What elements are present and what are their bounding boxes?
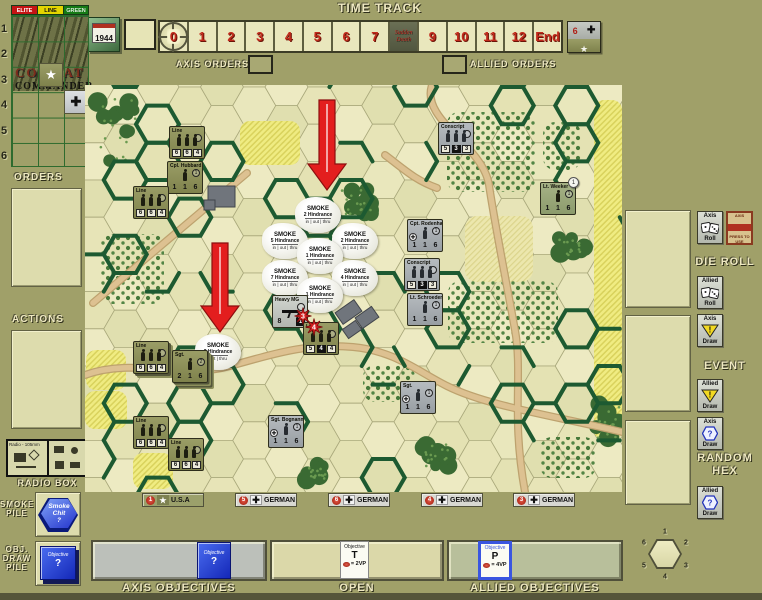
- unit-stats: 116: [403, 404, 433, 412]
- unit-counter[interactable]: Lt. Schroeder1116: [407, 293, 443, 326]
- german-flag-icon: ✚: [528, 495, 540, 505]
- medal-icon: ✚: [270, 429, 278, 437]
- unit-silhouettes: [405, 269, 439, 278]
- unit-stat: 3: [418, 281, 427, 289]
- allied-hex-top-label: Allied: [702, 488, 718, 494]
- unit-counter[interactable]: Sgt. Bognanno1116✚: [268, 415, 304, 448]
- radio-box-label: RADIO BOX: [6, 478, 89, 488]
- unit-stats: 81: [275, 318, 305, 326]
- turn-counter-value: 6: [573, 26, 578, 36]
- allied-event-top-label: Allied: [702, 381, 718, 387]
- time-track-cell: 3: [246, 22, 275, 51]
- radio-art: [70, 462, 80, 468]
- objective-pile-chit[interactable]: Objective ?: [40, 546, 76, 580]
- axis-objectives-panel: [91, 540, 267, 581]
- allied-orders-label: ALLIED ORDERS: [470, 59, 557, 69]
- radio-art: [54, 446, 64, 453]
- roster-column-line: LINE: [37, 5, 64, 15]
- roster-row-number: 1: [1, 23, 9, 35]
- time-track-number: 6: [342, 29, 349, 44]
- allied-objectives-panel: [447, 540, 623, 581]
- allied-hex-bottom-label: Draw: [703, 511, 718, 517]
- turn-counter-stack[interactable]: 6 ✚ ★: [567, 21, 601, 53]
- plaque-number-disc: 6: [332, 496, 341, 505]
- allied-event-bottom-label: Draw: [703, 404, 718, 410]
- axis-objective-chit[interactable]: Objective ?: [197, 542, 231, 579]
- unit-stat: 4: [192, 461, 201, 469]
- time-track-cell: 1: [189, 22, 218, 51]
- unit-silhouettes: [134, 352, 168, 361]
- smoke-pile-chit[interactable]: Smoke Chit ?: [38, 498, 78, 532]
- allied-objective-title: Objective: [481, 544, 509, 551]
- axis-card-top-label: AXIS: [728, 213, 751, 218]
- machine-gun-icon: [282, 310, 298, 313]
- unit-stat: 5: [407, 281, 416, 289]
- actions-display-box: [11, 330, 82, 429]
- unit-silhouettes: [304, 333, 338, 342]
- time-track-cell: 6: [333, 22, 362, 51]
- axis-event-bottom-label: Draw: [703, 339, 718, 345]
- unit-stat: 6: [136, 209, 145, 217]
- game-window: { "header": { "time_track_title": "TIME …: [0, 0, 762, 600]
- vp-dot-icon: [343, 562, 350, 567]
- random-hex-icon: ?: [702, 426, 718, 441]
- unit-roster-panel: COMBAT COMMANDER ELITE LINE GREEN ★ ✚: [8, 5, 89, 168]
- unit-silhouettes: [168, 172, 202, 181]
- unit-stat: 1: [410, 316, 419, 324]
- time-track-number: 4: [285, 29, 292, 44]
- axis-hex-bottom-label: Draw: [703, 442, 718, 448]
- allied-objective-letter: P: [481, 551, 509, 562]
- unit-silhouettes: [173, 361, 207, 370]
- plaque-label: U.S.A: [171, 497, 190, 504]
- event-triangle-icon: !: [701, 323, 719, 338]
- objective-chit-title: Objective: [41, 547, 75, 558]
- unit-stat: 4: [327, 345, 336, 353]
- unit-silhouettes: [169, 449, 203, 458]
- smoke-marker-text: out | thru: [208, 355, 228, 362]
- unit-silhouettes: [408, 304, 442, 313]
- time-track-title: TIME TRACK: [280, 1, 480, 15]
- allied-event-draw-button[interactable]: Allied ! Draw: [697, 379, 723, 412]
- smoke-marker-text: in | out | thru: [305, 218, 332, 225]
- roster-row-number: 3: [1, 74, 9, 86]
- unit-stat: 3: [462, 145, 471, 153]
- time-track-cell: 2: [218, 22, 247, 51]
- map-token-layer: SMOKE2 Hindrancein | out | thruSMOKE5 Hi…: [85, 85, 622, 492]
- axis-event-top-label: Axis: [704, 316, 717, 322]
- radio-box-cell: [49, 441, 88, 475]
- unit-silhouettes: [541, 193, 575, 202]
- unit-counter[interactable]: Line664: [169, 126, 205, 159]
- unit-stat: 1: [421, 242, 430, 250]
- unit-stat: 4: [193, 149, 202, 157]
- unit-name: Line: [170, 127, 204, 134]
- smoke-marker-text: in | out | thru: [272, 244, 299, 251]
- unit-stat: 6: [147, 209, 156, 217]
- orders-display-box: [11, 188, 82, 287]
- plaque-label: GERMAN: [264, 497, 295, 504]
- smoke-marker-text: in | out | thru: [342, 281, 369, 288]
- unit-name: Cpt. Rodenhaus: [408, 220, 442, 227]
- unit-silhouettes: [134, 427, 168, 436]
- smoke-marker-text: in | out | thru: [307, 298, 334, 305]
- unit-stat: 5: [441, 145, 450, 153]
- random-hex-icon: ?: [702, 495, 718, 510]
- allied-roll-bottom-label: Roll: [704, 301, 715, 307]
- unit-stat: 6: [183, 149, 192, 157]
- hex-direction-compass: 123456: [636, 526, 694, 582]
- unit-name: Line: [169, 439, 203, 446]
- unit-stats: 664: [136, 439, 166, 447]
- axis-objective-value: ?: [198, 556, 230, 567]
- compass-direction-number: 3: [684, 563, 688, 570]
- axis-orders-box: [248, 55, 273, 74]
- unit-stat: 6: [191, 184, 200, 192]
- allied-objective-vp: = 4VP: [491, 562, 506, 568]
- unit-silhouettes: [134, 197, 168, 206]
- plaque-number-disc: 4: [425, 496, 434, 505]
- time-track-cell: 5: [304, 22, 333, 51]
- time-track-cell: 7: [361, 22, 390, 51]
- unit-stat: 4: [157, 209, 166, 217]
- sudden-death-chit[interactable]: SuddenDeath: [390, 22, 419, 51]
- unit-silhouettes: [439, 133, 473, 142]
- sudden-death-label: Sudden: [395, 30, 413, 36]
- unit-stats: 664: [171, 461, 201, 469]
- time-track-number: 11: [483, 29, 497, 44]
- event-triangle-icon: !: [701, 388, 719, 403]
- unit-stats: 533: [441, 145, 471, 153]
- allied-roll-button[interactable]: Allied Roll: [697, 276, 723, 309]
- time-track-cell: 0: [160, 22, 189, 51]
- track-holding-box: [124, 19, 156, 50]
- us-star-icon: ★: [580, 44, 588, 54]
- axis-orders-label: AXIS ORDERS: [176, 59, 249, 69]
- unit-name: Sgt.: [173, 351, 207, 358]
- svg-text:?: ?: [708, 499, 713, 508]
- svg-text:!: !: [709, 391, 712, 400]
- unit-counter[interactable]: Cpt. Rodenhaus1116✚: [407, 219, 443, 252]
- axis-card-button[interactable]: AXIS PRESS TO USE: [726, 211, 753, 245]
- year-chit[interactable]: 1944: [88, 17, 120, 52]
- smoke-marker[interactable]: SMOKE2 Hindrancein | out | thru: [295, 197, 341, 233]
- red-arrow-marker: [308, 100, 346, 190]
- radio-box[interactable]: Radio - 105mm: [6, 439, 89, 477]
- unit-stat: 1: [282, 438, 291, 446]
- unit-stat: 3: [452, 145, 461, 153]
- plaque-label: GERMAN: [450, 497, 481, 504]
- unit-stat: 1: [170, 184, 179, 192]
- axis-card-bottom-label: PRESS TO USE: [728, 234, 751, 244]
- radio-art: [71, 447, 78, 454]
- smoke-marker-text: in | out | thru: [342, 244, 369, 251]
- open-objective-title: Objective: [341, 542, 368, 550]
- time-track-cell: End: [534, 22, 561, 51]
- unit-stat: 6: [147, 364, 156, 372]
- objective-chit-value: ?: [41, 558, 75, 569]
- axis-objective-title: Objective: [198, 543, 230, 556]
- roster-row-number: 5: [1, 125, 9, 137]
- unit-stat: 6: [196, 373, 205, 381]
- allied-roll-top-label: Allied: [702, 278, 718, 284]
- axis-card-band: [728, 224, 751, 231]
- open-objective-vp: = 2VP: [351, 561, 366, 567]
- unit-stats: 116: [410, 242, 440, 250]
- unit-stats: 533: [407, 281, 437, 289]
- axis-hex-top-label: Axis: [704, 419, 717, 425]
- unit-stat: 4: [317, 345, 326, 353]
- unit-counter[interactable]: Line664: [168, 438, 204, 471]
- unit-stat: 1: [421, 316, 430, 324]
- unit-stat: 6: [136, 364, 145, 372]
- unit-stat: 6: [136, 439, 145, 447]
- unit-counter[interactable]: Line544: [303, 322, 339, 355]
- roster-row-number: 4: [1, 99, 9, 111]
- obj-draw-pile-label: OBJ. DRAW PILE: [0, 545, 34, 572]
- unit-stats: 544: [306, 345, 336, 353]
- plaque-number-disc: 1: [146, 496, 155, 505]
- unit-counter[interactable]: Lt. Weeker11161: [540, 182, 576, 215]
- unit-counter[interactable]: Sgt.1116✚: [400, 381, 436, 414]
- orders-label: ORDERS: [14, 172, 63, 183]
- open-objective-chit[interactable]: Objective T = 2VP: [340, 541, 369, 579]
- time-track: 01234567SuddenDeath9101112End: [158, 20, 563, 53]
- axis-roll-button[interactable]: Axis Roll: [697, 211, 723, 244]
- unit-name: Line: [134, 342, 168, 349]
- smoke-pile-box: Smoke Chit ?: [35, 492, 81, 537]
- time-track-cell: 9: [419, 22, 448, 51]
- allied-orders-box: [442, 55, 467, 74]
- axis-hex-draw-button[interactable]: Axis ? Draw: [697, 417, 723, 450]
- time-track-number: 2: [227, 29, 234, 44]
- unit-stat: 3: [428, 281, 437, 289]
- unit-stat: 4: [157, 439, 166, 447]
- svg-text:!: !: [709, 326, 712, 335]
- unit-stat: 1: [554, 205, 563, 213]
- unit-name: Line: [134, 417, 168, 424]
- smoke-pile-label: SMOKE PILE: [0, 500, 34, 518]
- unit-stat: 6: [182, 461, 191, 469]
- radio-art: [28, 449, 39, 460]
- unit-stats: 216: [175, 373, 205, 381]
- time-track-number: End: [535, 29, 560, 44]
- unit-counter[interactable]: Conscript533: [404, 258, 440, 291]
- unit-name: Sgt.: [401, 382, 435, 389]
- unit-name: Conscript: [405, 259, 439, 266]
- axis-card-display-box: [625, 210, 691, 308]
- time-track-number: 5: [314, 29, 321, 44]
- unit-stat: 6: [431, 242, 440, 250]
- sudden-death-label: Death: [396, 37, 411, 43]
- axis-event-draw-button[interactable]: Axis ! Draw: [697, 314, 723, 347]
- compass-direction-number: 6: [642, 540, 646, 547]
- svg-text:?: ?: [708, 430, 713, 439]
- unit-stats: 116: [170, 184, 200, 192]
- time-track-number: 0: [167, 29, 180, 44]
- time-track-number: 10: [454, 29, 468, 44]
- unit-stats: 116: [410, 316, 440, 324]
- unit-name: Lt. Schroeder: [408, 294, 442, 301]
- unit-counter[interactable]: Line664: [133, 341, 169, 374]
- unit-stat: 6: [171, 461, 180, 469]
- time-track-cell: 11: [477, 22, 506, 51]
- german-flag-icon: ✚: [343, 495, 355, 505]
- time-track-cell: 4: [275, 22, 304, 51]
- unit-counter[interactable]: Sgt.2216: [172, 350, 208, 383]
- unit-stat: 6: [172, 149, 181, 157]
- unit-stat: 2: [175, 373, 184, 381]
- unit-stat: 6: [431, 316, 440, 324]
- us-flag-icon: ★: [157, 495, 169, 505]
- bottom-border-bar: [0, 593, 762, 600]
- compass-direction-number: 2: [684, 540, 688, 547]
- unit-stat: 8: [275, 318, 284, 326]
- compass-direction-number: 1: [663, 529, 667, 536]
- unit-name: Conscript: [439, 123, 473, 130]
- die-roll-label: DIE ROLL: [688, 256, 762, 268]
- unit-stat: 6: [292, 438, 301, 446]
- hex-card-display-box: [625, 420, 691, 505]
- unit-counter[interactable]: Conscript533: [438, 122, 474, 155]
- unit-stat: 4: [157, 364, 166, 372]
- time-track-number: 3: [256, 29, 263, 44]
- event-label: EVENT: [688, 360, 762, 372]
- radio-art: [14, 453, 26, 462]
- star-icon: ★: [45, 67, 57, 83]
- dice-icon: [701, 286, 719, 300]
- unit-stat: 6: [424, 404, 433, 412]
- unit-stat: 1: [271, 438, 280, 446]
- medal-icon: ✚: [409, 233, 417, 241]
- unit-name: Heavy MG: [273, 296, 307, 303]
- red-arrow-marker: [201, 243, 239, 332]
- plaque-number-disc: 5: [239, 496, 248, 505]
- axis-roll-top-label: Axis: [704, 213, 717, 219]
- time-track-number: 9: [429, 29, 436, 44]
- unit-name: Line: [134, 187, 168, 194]
- axis-roll-bottom-label: Roll: [704, 236, 715, 242]
- german-flag-icon: ✚: [436, 495, 448, 505]
- german-cross-icon: ✚: [587, 25, 595, 36]
- unit-stats: 116: [271, 438, 301, 446]
- time-marker-dial[interactable]: 0: [161, 24, 186, 49]
- faction-plaque[interactable]: 1★U.S.A: [142, 493, 204, 507]
- smoke-marker-text: in | out | thru: [307, 259, 334, 266]
- unit-stats: 664: [136, 364, 166, 372]
- roster-row-number: 2: [1, 48, 9, 60]
- unit-stat: 1: [403, 404, 412, 412]
- unit-stat: 1: [181, 184, 190, 192]
- roster-row-number: 6: [1, 150, 9, 162]
- unit-stat: 5: [306, 345, 315, 353]
- status-disc-marker[interactable]: 1: [568, 177, 579, 188]
- time-track-number: 12: [512, 29, 526, 44]
- radio-art: [16, 466, 36, 468]
- time-track-cell: 12: [505, 22, 534, 51]
- unit-stat: 6: [564, 205, 573, 213]
- faction-plaque[interactable]: 4✚GERMAN: [421, 493, 483, 507]
- unit-stats: 664: [172, 149, 202, 157]
- roster-column-green: GREEN: [63, 5, 89, 15]
- time-track-number: 1: [199, 29, 206, 44]
- unit-counter[interactable]: Cpl. Hubbard1116: [167, 161, 203, 194]
- unit-stat: 1: [543, 205, 552, 213]
- allied-hex-draw-button[interactable]: Allied ? Draw: [697, 486, 723, 519]
- time-track-number: 7: [371, 29, 378, 44]
- faction-plaque[interactable]: 5✚GERMAN: [235, 493, 297, 507]
- plaque-number-disc: 3: [517, 496, 526, 505]
- unit-stat: 1: [186, 373, 195, 381]
- unit-silhouettes: [273, 306, 307, 313]
- unit-stat: 1: [414, 404, 423, 412]
- random-hex-label: RANDOM HEX: [688, 452, 762, 478]
- smoke-marker-text: in | out | thru: [272, 281, 299, 288]
- compass-direction-number: 5: [642, 563, 646, 570]
- faction-plaque[interactable]: 6✚GERMAN: [328, 493, 390, 507]
- unit-stat: 1: [410, 242, 419, 250]
- unit-counter[interactable]: Line664: [133, 186, 169, 219]
- unit-name: Cpl. Hubbard: [168, 162, 202, 169]
- iron-cross-icon: ✚: [71, 94, 82, 110]
- time-track-cell: 10: [448, 22, 477, 51]
- compass-direction-number: 4: [663, 574, 667, 581]
- german-flag-icon: ✚: [250, 495, 262, 505]
- event-card-display-box: [625, 315, 691, 412]
- year-label: 1944: [95, 34, 113, 43]
- hex-map[interactable]: SMOKE2 Hindrancein | out | thruSMOKE5 Hi…: [85, 85, 622, 492]
- medal-icon: ✚: [402, 395, 410, 403]
- unit-counter[interactable]: Line664: [133, 416, 169, 449]
- roster-column-elite: ELITE: [11, 5, 38, 15]
- radio-label: Radio - 105mm: [9, 442, 40, 447]
- unit-stats: 664: [136, 209, 166, 217]
- us-stars-stripes-chit[interactable]: ★: [39, 63, 63, 87]
- faction-plaque[interactable]: 3✚GERMAN: [513, 493, 575, 507]
- obj-draw-pile-box: Objective ?: [35, 541, 81, 586]
- allied-objective-chit[interactable]: Objective P = 4VP: [478, 541, 512, 580]
- unit-stats: 116: [543, 205, 573, 213]
- dice-icon: [701, 221, 719, 235]
- unit-stat: 6: [147, 439, 156, 447]
- unit-silhouettes: [170, 137, 204, 146]
- plaque-label: GERMAN: [542, 497, 573, 504]
- radio-box-cell: Radio - 105mm: [8, 441, 49, 475]
- open-objective-letter: T: [341, 550, 368, 561]
- unit-name: Sgt. Bognanno: [269, 416, 303, 423]
- actions-label: ACTIONS: [12, 314, 64, 325]
- vp-dot-icon: [483, 563, 490, 568]
- unit-name: Line: [304, 323, 338, 330]
- radio-art: [55, 461, 64, 469]
- plaque-label: GERMAN: [357, 497, 388, 504]
